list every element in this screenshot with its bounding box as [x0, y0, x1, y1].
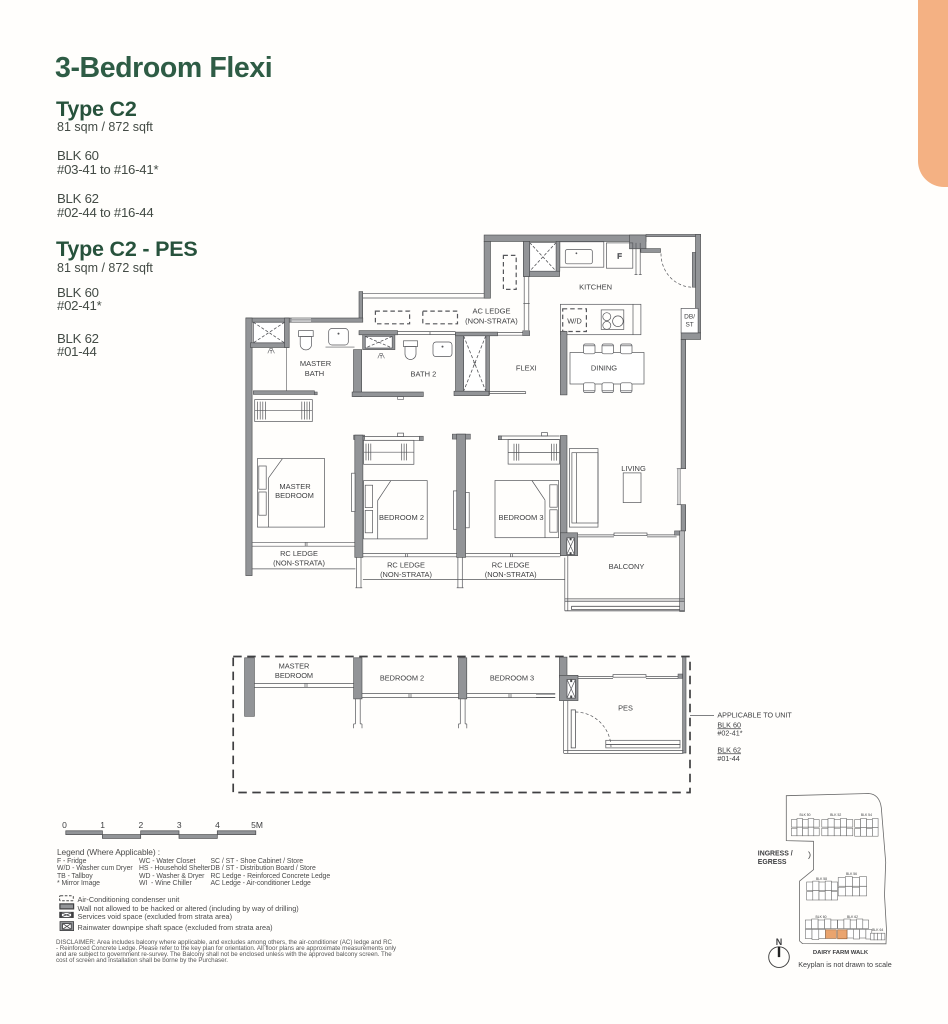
- svg-text:BEDROOM 3: BEDROOM 3: [490, 674, 534, 683]
- svg-text:RC LEDGE: RC LEDGE: [387, 560, 425, 569]
- svg-text:MASTER: MASTER: [279, 661, 310, 670]
- svg-text:INGRESS /: INGRESS /: [758, 850, 793, 857]
- svg-text:0: 0: [62, 820, 67, 830]
- svg-text:BLK 62: BLK 62: [847, 915, 858, 919]
- svg-text:BLK 52: BLK 52: [830, 813, 841, 817]
- svg-text:RC LEDGE: RC LEDGE: [492, 560, 530, 569]
- svg-text:BEDROOM 3: BEDROOM 3: [498, 513, 543, 522]
- svg-text:(NON-STRATA): (NON-STRATA): [273, 558, 325, 567]
- svg-text:BEDROOM 2: BEDROOM 2: [380, 674, 424, 683]
- svg-text:#02-41*: #02-41*: [717, 729, 742, 738]
- svg-text:BLK 54: BLK 54: [861, 813, 872, 817]
- svg-text:1: 1: [100, 820, 105, 830]
- svg-text:N: N: [776, 937, 783, 947]
- svg-text:BATH 2: BATH 2: [411, 369, 437, 378]
- svg-text:RC LEDGE: RC LEDGE: [280, 549, 318, 558]
- svg-text:BLK 50: BLK 50: [799, 813, 810, 817]
- svg-text:(NON-STRATA): (NON-STRATA): [465, 316, 518, 325]
- svg-text:(NON-STRATA): (NON-STRATA): [380, 570, 432, 579]
- svg-text:DB/: DB/: [684, 313, 695, 320]
- svg-text:BLK 64: BLK 64: [872, 928, 883, 932]
- svg-text:DAIRY FARM WALK: DAIRY FARM WALK: [813, 950, 869, 956]
- svg-text:BLK 60: BLK 60: [815, 915, 826, 919]
- svg-text:KITCHEN: KITCHEN: [579, 283, 612, 292]
- svg-text:ST: ST: [685, 321, 693, 328]
- svg-text:BATH: BATH: [305, 369, 324, 378]
- svg-text:Keyplan is not drawn to scale: Keyplan is not drawn to scale: [798, 960, 892, 969]
- svg-text:MASTER: MASTER: [300, 359, 332, 368]
- svg-text:PES: PES: [618, 704, 633, 713]
- svg-text:MASTER: MASTER: [279, 482, 311, 491]
- svg-text:BEDROOM 2: BEDROOM 2: [379, 513, 424, 522]
- svg-text:EGRESS: EGRESS: [758, 859, 787, 866]
- svg-text:BEDROOM: BEDROOM: [275, 491, 314, 500]
- svg-text:4: 4: [215, 820, 220, 830]
- svg-text:AC LEDGE: AC LEDGE: [473, 307, 511, 316]
- svg-text:FLEXI: FLEXI: [516, 364, 537, 373]
- svg-text:3: 3: [177, 820, 182, 830]
- svg-text:5M: 5M: [251, 820, 263, 830]
- svg-text:W/D: W/D: [567, 317, 582, 326]
- svg-text:APPLICABLE TO UNIT: APPLICABLE TO UNIT: [717, 711, 792, 720]
- svg-text:DINING: DINING: [591, 364, 617, 373]
- svg-text:#01-44: #01-44: [717, 754, 739, 763]
- svg-text:BALCONY: BALCONY: [609, 562, 645, 571]
- svg-text:2: 2: [139, 820, 144, 830]
- svg-text:(NON-STRATA): (NON-STRATA): [485, 570, 537, 579]
- svg-text:F: F: [617, 251, 622, 260]
- svg-text:LIVING: LIVING: [621, 464, 646, 473]
- svg-text:BLK 58: BLK 58: [816, 877, 827, 881]
- svg-text:BEDROOM: BEDROOM: [275, 671, 313, 680]
- svg-text:BLK 56: BLK 56: [846, 872, 857, 876]
